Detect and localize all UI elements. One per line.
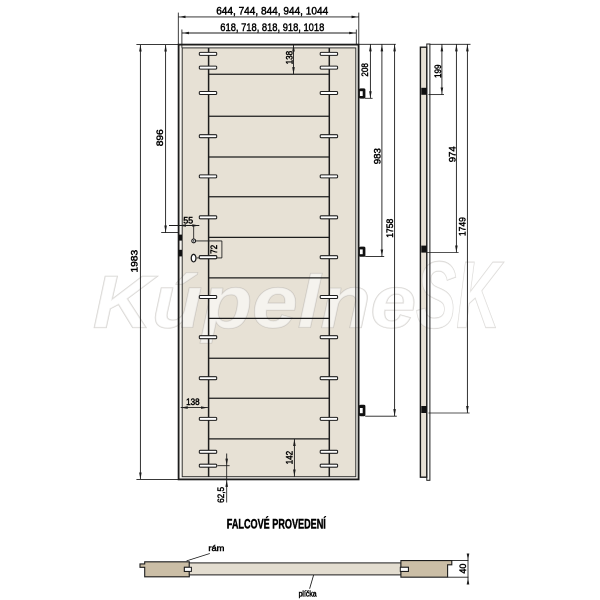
svg-text:40: 40: [457, 564, 468, 574]
svg-text:1758: 1758: [384, 219, 395, 238]
svg-text:199: 199: [432, 64, 443, 78]
svg-text:72: 72: [209, 245, 219, 254]
svg-text:62,5: 62,5: [215, 487, 226, 503]
svg-text:644, 744, 844, 944, 1044: 644, 744, 844, 944, 1044: [216, 6, 328, 18]
svg-text:138: 138: [186, 396, 200, 407]
svg-text:FALCOVÉ PROVEDENÍ: FALCOVÉ PROVEDENÍ: [227, 517, 327, 532]
svg-text:138: 138: [283, 51, 294, 65]
svg-text:plíčka: plíčka: [299, 589, 317, 598]
svg-text:55: 55: [183, 214, 193, 225]
svg-text:1983: 1983: [129, 250, 140, 273]
svg-text:974: 974: [446, 146, 457, 162]
svg-text:208: 208: [359, 63, 370, 77]
svg-text:SK: SK: [416, 243, 504, 349]
svg-text:896: 896: [154, 129, 165, 146]
svg-text:983: 983: [371, 148, 382, 164]
svg-text:142: 142: [283, 451, 294, 465]
svg-text:Kúpelne: Kúpelne: [93, 261, 416, 344]
svg-text:rám: rám: [208, 544, 224, 553]
svg-text:618, 718, 818, 918, 1018: 618, 718, 818, 918, 1018: [220, 22, 324, 34]
svg-text:1749: 1749: [457, 217, 468, 236]
